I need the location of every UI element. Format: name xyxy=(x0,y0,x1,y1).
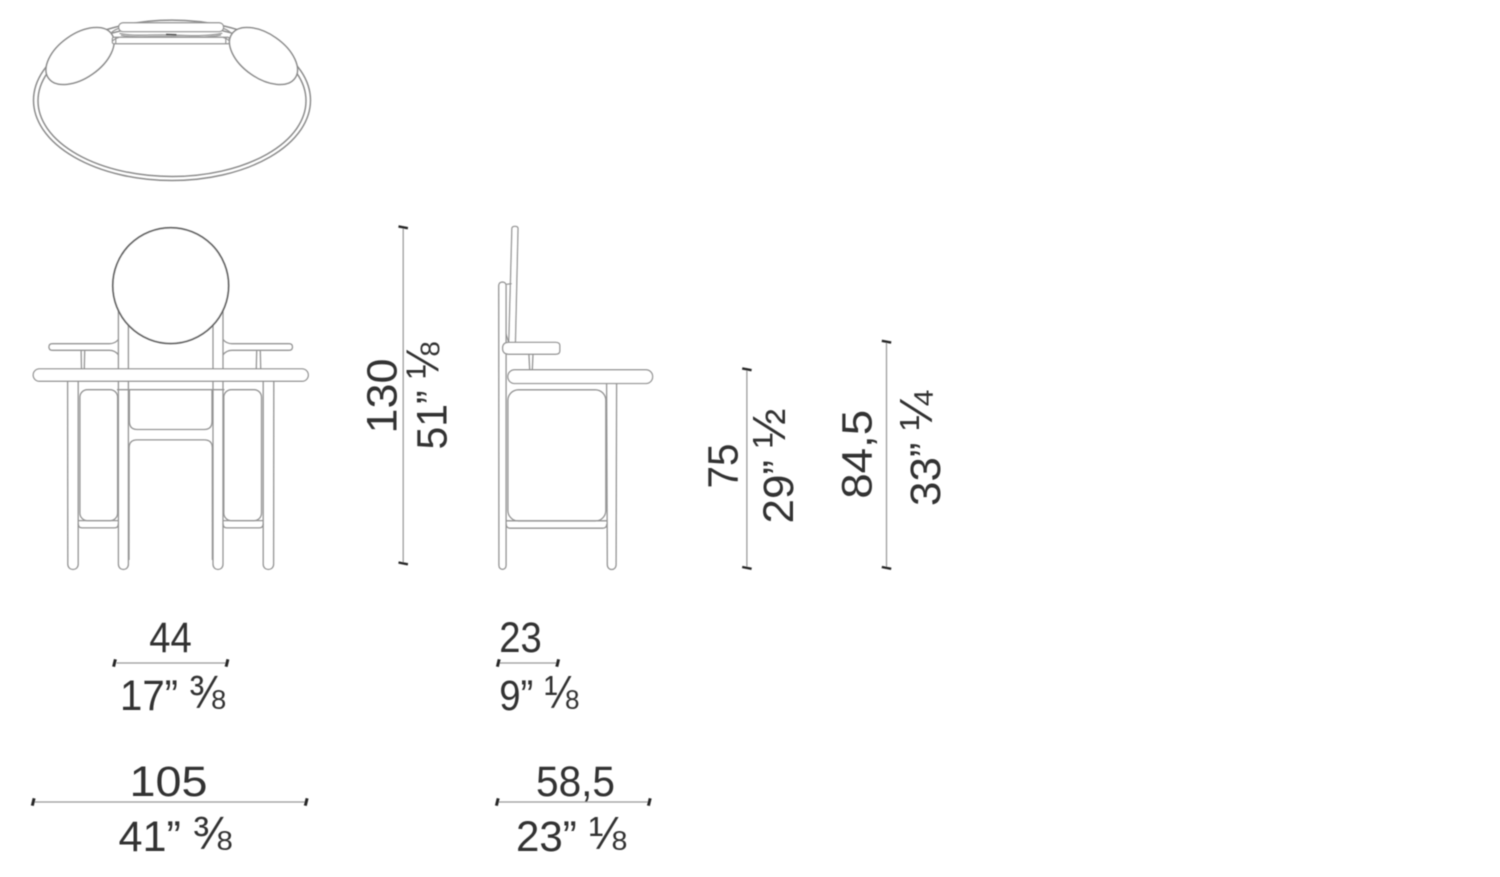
svg-text:23” ⅛: 23” ⅛ xyxy=(516,807,627,861)
svg-text:44: 44 xyxy=(149,614,192,662)
svg-text:105: 105 xyxy=(130,758,208,806)
svg-text:84,5: 84,5 xyxy=(834,410,882,499)
svg-text:41” ⅜: 41” ⅜ xyxy=(119,807,233,861)
svg-text:9” ⅛: 9” ⅛ xyxy=(499,666,579,720)
svg-text:29” ½: 29” ½ xyxy=(743,409,803,524)
svg-text:58,5: 58,5 xyxy=(536,758,615,806)
svg-text:17” ⅜: 17” ⅜ xyxy=(120,666,226,720)
svg-text:75: 75 xyxy=(699,444,747,489)
svg-text:33” ¼: 33” ¼ xyxy=(890,390,950,506)
svg-text:23: 23 xyxy=(499,614,542,662)
